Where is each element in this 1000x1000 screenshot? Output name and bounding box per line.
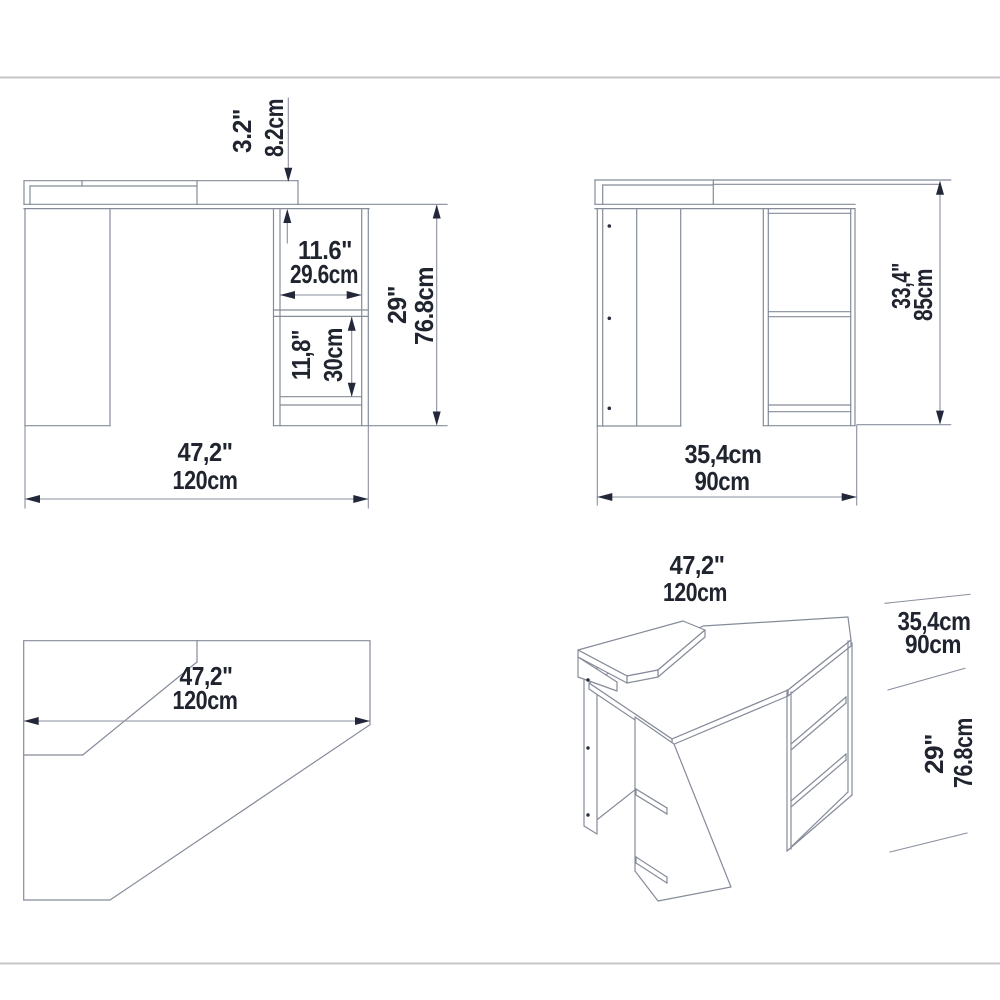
side-total-height-dimension: 33,4" 85cm: [857, 181, 951, 425]
front-rail-height-dimension: 3.2" 8.2cm: [227, 98, 292, 182]
front-compartment-height-cm: 30cm: [318, 328, 348, 382]
iso-desk-height-inches: 29": [919, 734, 949, 774]
side-depth-label-2: 90cm: [695, 466, 750, 496]
front-compartment-height-inches: 11,8": [286, 330, 316, 380]
iso-middle-panel: [635, 717, 731, 901]
front-desk-height-dimension: 29" 76.8cm: [382, 205, 441, 426]
iso-view: 47,2" 120cm 35,4cm 90cm 29" 76.8cm: [578, 550, 978, 901]
iso-desk-depth-label-2: 90cm: [905, 629, 961, 659]
corner-desk-dimension-drawing: 3.2" 8.2cm 11.6" 29.6cm 11,8" 30cm 29": [0, 0, 1000, 1000]
top-desk-width-dimension: 47,2" 120cm: [24, 661, 370, 725]
front-desk-width-cm: 120cm: [173, 465, 238, 495]
iso-leader-line-bottom: [890, 833, 967, 852]
front-compartment-width-cm: 29.6cm: [290, 259, 358, 289]
side-total-height-cm: 85cm: [908, 269, 938, 321]
iso-desk-width-inches: 47,2": [670, 550, 725, 580]
bottom-border-line: [0, 963, 1000, 965]
front-compartment-height-dimension: 11,8" 30cm: [286, 317, 356, 397]
front-view: 3.2" 8.2cm 11.6" 29.6cm 11,8" 30cm 29": [24, 98, 447, 508]
side-depth-dimension: 35,4cm 90cm: [597, 426, 856, 505]
iso-leader-line-top: [885, 594, 970, 603]
technical-drawing-page: 3.2" 8.2cm 11.6" 29.6cm 11,8" 30cm 29": [0, 0, 1000, 1000]
iso-desk-height-cm: 76.8cm: [948, 718, 978, 788]
top-view: 47,2" 120cm: [24, 641, 370, 900]
front-desk-height-cm: 76.8cm: [409, 267, 439, 345]
front-desk-width-inches: 47,2": [178, 437, 233, 467]
top-desk-width-cm: 120cm: [173, 685, 238, 715]
iso-leader-line-middle: [888, 668, 965, 690]
front-desk-height-inches: 29": [382, 286, 412, 324]
top-border-line: [0, 77, 1000, 79]
front-rail-height-cm: 8.2cm: [259, 99, 289, 157]
front-compartment-width-dimension: 11.6" 29.6cm: [280, 209, 362, 299]
side-view: 33,4" 85cm 35,4cm 90cm: [595, 180, 951, 505]
front-rail-height-inches: 3.2": [227, 109, 257, 153]
side-depth-label-1: 35,4cm: [685, 439, 762, 469]
front-desk-width-dimension: 47,2" 120cm: [25, 426, 368, 508]
iso-desk-width-cm: 120cm: [663, 577, 727, 607]
